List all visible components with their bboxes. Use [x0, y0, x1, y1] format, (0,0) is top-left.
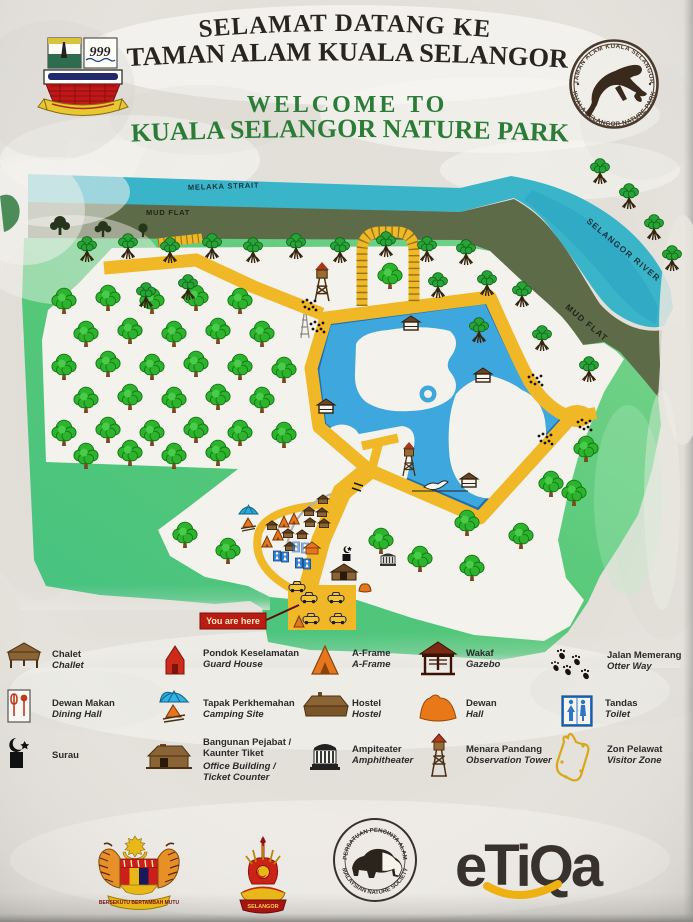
svg-text:SELANGOR: SELANGOR — [247, 904, 278, 910]
svg-text:Dining Hall: Dining Hall — [52, 709, 102, 720]
svg-text:Wakaf: Wakaf — [466, 648, 494, 659]
svg-text:Hall: Hall — [466, 709, 484, 720]
svg-text:A-Frame: A-Frame — [351, 659, 391, 670]
svg-text:999: 999 — [90, 45, 111, 60]
svg-text:KUALA SELANGOR NATURE PARK: KUALA SELANGOR NATURE PARK — [130, 114, 570, 148]
svg-text:Amphitheater: Amphitheater — [351, 755, 415, 766]
svg-text:Otter Way: Otter Way — [607, 661, 652, 672]
svg-text:Bangunan Pejabat /: Bangunan Pejabat / — [203, 737, 292, 748]
svg-text:Ampiteater: Ampiteater — [352, 744, 402, 755]
svg-text:BERSEKUTU BERTAMBAH MUTU: BERSEKUTU BERTAMBAH MUTU — [99, 900, 180, 906]
svg-text:Toilet: Toilet — [605, 709, 631, 720]
svg-text:A-Frame: A-Frame — [352, 648, 391, 659]
svg-text:Hostel: Hostel — [352, 698, 381, 709]
svg-text:Chalet: Chalet — [52, 649, 82, 660]
svg-text:Challet: Challet — [52, 660, 85, 671]
svg-text:Dewan Makan: Dewan Makan — [52, 698, 115, 709]
svg-text:Hostel: Hostel — [352, 709, 381, 720]
svg-text:Tapak Perkhemahan: Tapak Perkhemahan — [203, 698, 295, 709]
svg-text:Guard House: Guard House — [203, 659, 263, 670]
svg-text:Observation Tower: Observation Tower — [466, 755, 553, 766]
svg-text:Gazebo: Gazebo — [466, 659, 501, 670]
svg-text:Dewan: Dewan — [466, 698, 497, 709]
svg-text:Camping Site: Camping Site — [203, 709, 264, 720]
svg-text:Jalan Memerang: Jalan Memerang — [607, 650, 682, 661]
svg-text:Office Building /: Office Building / — [203, 761, 277, 772]
svg-text:MUD FLAT: MUD FLAT — [146, 208, 190, 217]
svg-text:You are here: You are here — [206, 616, 260, 626]
svg-text:Menara Pandang: Menara Pandang — [466, 744, 542, 755]
svg-text:Tandas: Tandas — [605, 698, 638, 709]
svg-text:Visitor Zone: Visitor Zone — [607, 755, 662, 766]
svg-text:Kaunter Tiket: Kaunter Tiket — [203, 748, 264, 759]
svg-text:eTiQa: eTiQa — [455, 833, 604, 899]
svg-text:Surau: Surau — [52, 750, 79, 761]
svg-text:Zon Pelawat: Zon Pelawat — [607, 744, 663, 755]
svg-text:Pondok Keselamatan: Pondok Keselamatan — [203, 648, 299, 659]
svg-text:Ticket Counter: Ticket Counter — [203, 772, 271, 783]
